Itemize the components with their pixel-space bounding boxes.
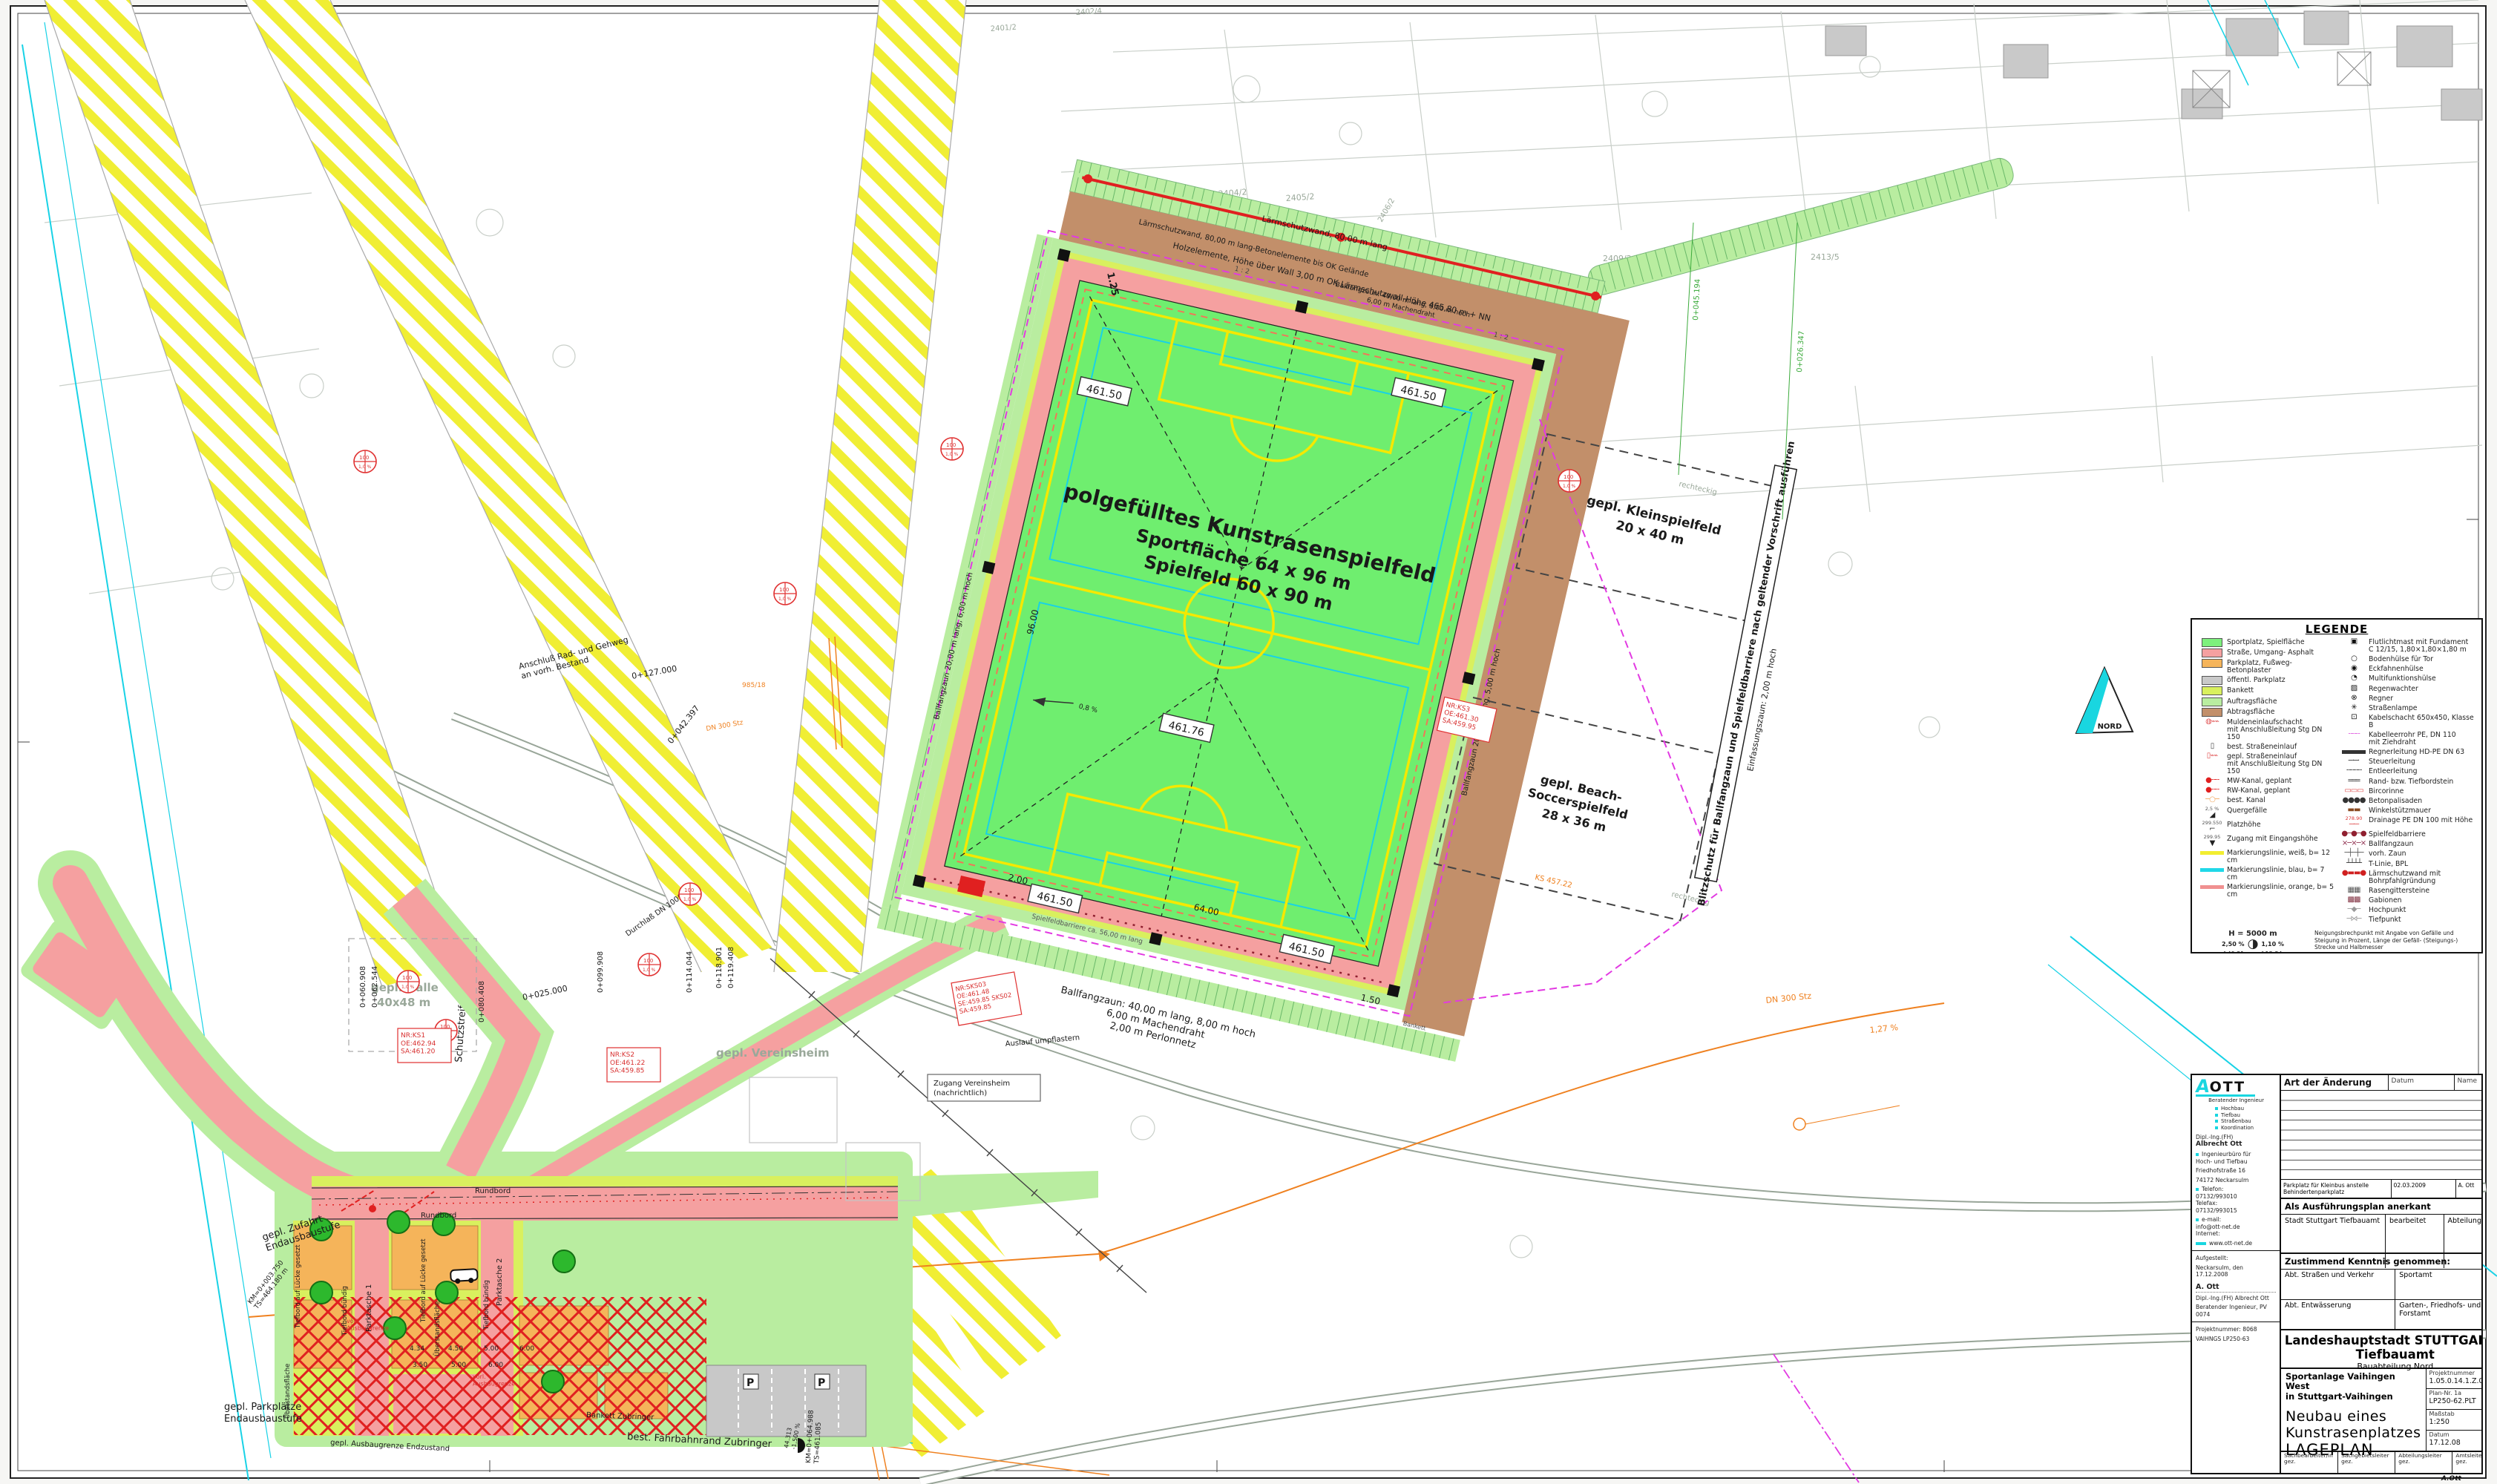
legend-symbol-icon [2197,686,2227,695]
legend-title: LEGENDE [2197,623,2476,636]
legend-item-label: RW-Kanal, geplant [2227,787,2290,795]
legend-item: ▨Regenwachter [2339,685,2476,693]
stamp-value: 100 [643,958,653,964]
approval-title: Als Ausführungsplan anerkant [2281,1199,2483,1215]
legend-right-column: ▣Flutlichtmast mit Fundament C 12/15, 1,… [2339,638,2476,925]
station: 0+060.908 [359,966,367,1008]
signature-row: Sachbearbeiter/in gez. Sachgebietsleiter… [2281,1452,2483,1473]
legend-symbol-icon: ▭▭▭ [2339,787,2369,795]
revision-date: 02.03.2009 [2391,1180,2455,1198]
legend-symbol-icon: ✳ [2339,704,2369,712]
parktasche-1: Parktasche 1 [365,1284,373,1332]
legend-item-label: Platzhöhe [2227,821,2261,829]
firm-project-code: VAIHNGS LP250-63 [2196,1336,2276,1342]
legend-item-label: MW-Kanal, geplant [2227,777,2291,785]
stamp-value: 1,0 % [1563,484,1575,489]
legend-symbol-icon [2197,638,2227,647]
revision-name: A. Ott [2455,1180,2483,1198]
revisions-date-col: Datum [2388,1075,2454,1090]
legend-item-label: Muldeneinlaufschacht mit Anschlußleitung… [2227,718,2334,741]
drawing-sheet: 2401/2 2402/4 2404/2 2405/2 2406/2 2409/… [0,0,2497,1484]
authority-section: Landeshauptstadt STUTTGART – Tiefbauamt … [2281,1330,2483,1369]
plannr-label: Plan-Nr. 1a [2429,1390,2483,1396]
titleblock-main: Art der Änderung Datum Name Parkplatz fü… [2281,1075,2483,1473]
legend-item: ─┼─┼─vorh. Zaun [2339,850,2476,858]
park-dim: 4.34 [410,1345,424,1353]
legend-item-label: Straße, Umgang- Asphalt [2227,649,2314,657]
stamp-value: 1,0 % [358,464,371,470]
stamp-value: 100 [359,455,369,461]
legend-item: Parkplatz, Fußweg- Betonplaster [2197,659,2334,674]
projnum-value: 1.05.0.14.1.Z.001.0 [2429,1377,2483,1385]
legend-item: ●╌╌MW-Kanal, geplant [2197,777,2334,785]
legend-symbol-icon [2197,849,2227,855]
firm-signature-name: Dipl.-Ing.(FH) Albrecht Ott [2196,1295,2276,1301]
tiefbord-label: Tiefbord auf Lücke gesetzt [420,1238,427,1323]
legend-item: ▭▭▭Bircorinne [2339,787,2476,795]
legend-symbol-icon [2197,659,2227,668]
firm-created-value: Neckarsulm, den 17.12.2008 [2196,1264,2276,1278]
legend-item-label: Spielfeldbarriere [2369,830,2426,838]
park-dim: 6.00 [488,1362,503,1369]
legend-item-label: Regner [2369,695,2393,703]
legend-symbol-icon: ▯ [2197,743,2227,750]
consent-dept: Abt. Entwässerung [2281,1300,2395,1329]
firm-project-number: Projektnummer: 8068 [2196,1326,2276,1333]
gradient-break-icon: ◑ [2248,938,2259,951]
scale-right-len: auf 12,34 m [2254,951,2290,953]
consent-dept: Abt. Straßen und Verkehr [2281,1270,2395,1298]
legend-symbol-icon: ⨯─⨯─⨯ [2339,840,2369,847]
plot-stamp: A.Ott [2441,1475,2461,1483]
legend-item-label: Abtragsfläche [2227,708,2274,716]
legend-item-label: best. Kanal [2227,796,2265,804]
legend-symbol-icon: ╌╌╌╌ [2339,767,2369,775]
rundbord-label: Rundbord [475,1187,511,1195]
legend-item: ▬▬Winkelstützmauer [2339,807,2476,815]
rundbord-label: Rundbord [421,1212,456,1220]
stamp-value: 100 [684,887,694,893]
park-dim: 5.00 [451,1362,466,1369]
station: 0+114.044 [686,951,694,993]
legend-item: ─◆─Hochpunkt [2339,906,2476,914]
sig-cell: Sachgebietsleiter gez. [2337,1452,2395,1473]
parking-p-sign: P [747,1377,754,1389]
stamp-value: 100 [402,975,412,981]
park-dim: 6.00 [519,1345,534,1353]
approval-section: Als Ausführungsplan anerkant Stadt Stutt… [2281,1199,2483,1255]
legend-item-label: Kabelschacht 650x450, Klasse B [2369,714,2476,729]
legend-item-label: Ballfangzaun [2369,840,2413,848]
firm-signature: A. Ott [2196,1283,2276,1293]
legend-item-label: Rand- bzw. Tiefbordstein [2369,778,2453,786]
legend-item: Markierungslinie, orange, b= 5 cm [2197,883,2334,899]
parcel-label: 985/18 [742,682,766,689]
legend-item-label: Zugang mit Eingangshöhe [2227,835,2318,843]
legend-item-label: Eckfahnenhülse [2369,665,2424,673]
legend-item-label: vorh. Zaun [2369,850,2406,858]
legend-symbol-icon [2197,708,2227,717]
legend-scale-note: H = 5000 m 2,50 % ◑ 1,10 % auf 49,21 m a… [2197,930,2476,953]
consent-dept: Sportamt [2395,1270,2483,1298]
projnum-label: Projektnummer [2429,1370,2483,1376]
legend-item: ▯best. Straßeneinlauf [2197,743,2334,751]
legend-symbol-icon: 299.95▼ [2197,835,2227,847]
legend-symbol-icon: ▨ [2339,685,2369,692]
legend-symbol-icon: ○ [2339,655,2369,663]
legend-item-label: Regnerleitung HD-PE DN 63 [2369,748,2464,756]
stamp-value: 1,0 % [683,897,696,902]
legend-item: ●╌╌RW-Kanal, geplant [2197,787,2334,795]
scale-left-len: auf 49,21 m [2216,951,2252,953]
inlet-stamp: 1001,0 % [638,953,660,976]
sig-cell: Sachbearbeiter/in gez. [2281,1452,2337,1473]
legend-symbol-icon: ─◆─ [2339,906,2369,913]
inlet-stamp: 1001,0 % [774,582,796,605]
legend-item: öffentl. Parkplatz [2197,676,2334,685]
station: 0+099.908 [597,951,605,993]
project-section: Sportanlage Vaihingen West in Stuttgart-… [2281,1369,2483,1452]
firm-name: Albrecht Ott [2196,1140,2276,1149]
parktasche-2: Parktasche 2 [496,1258,504,1306]
legend-symbol-icon: ▣ [2339,638,2369,646]
north-label: NORD [2098,723,2122,731]
firm-service: Straßenbau [2196,1118,2276,1125]
legend-symbol-icon [2197,866,2227,872]
legend-symbol-icon: ◉ [2339,665,2369,672]
legend-item: ●▬▬●Lärmschutzwand mit Bohrpfahlgründung [2339,870,2476,885]
legend-item-label: Bodenhülse für Tor [2369,655,2433,663]
legend-item-label: Gabionen [2369,896,2402,904]
legend-item-label: Rasengittersteine [2369,887,2429,895]
zugang-vereinsheim: Zugang Vereinsheim [933,1080,1010,1088]
legend-item-label: gepl. Straßeneinlauf mit Anschlußleitung… [2227,752,2334,775]
legend-item: 299.550⌐Platzhöhe [2197,821,2334,833]
legend-item-label: Entleerleitung [2369,767,2417,775]
legend-symbol-icon: ⊡ [2339,714,2369,721]
firm-signature-title: Beratender Ingenieur, PV 0074 [2196,1304,2276,1318]
site-plan-drawing: 2401/2 2402/4 2404/2 2405/2 2406/2 2409/… [0,0,2497,1484]
legend-item-label: Multifunktionshülse [2369,674,2436,683]
legend-item: Regnerleitung HD-PE DN 63 [2339,748,2476,756]
plannr-value: LP250-62.PLT [2429,1397,2483,1405]
revisions-empty-rows [2281,1091,2483,1179]
date-label: Datum [2429,1431,2483,1438]
legend-symbol-icon [2197,676,2227,685]
legend-symbol-icon [2197,697,2227,706]
legend-symbol-icon: ●╌╌ [2197,787,2227,794]
legend-symbol-icon [2197,883,2227,889]
firm-panel: A OTT Beratender Ingenieur HochbauTiefba… [2192,1075,2281,1473]
legend-item: 2,5 %◢Quergefälle [2197,807,2334,819]
firm-created-label: Aufgestellt: [2196,1255,2276,1261]
legend-item: ─·─·Steuerleitung [2339,758,2476,766]
firm-office: Ingenieurbüro für Hoch- und Tiefbau [2196,1151,2276,1165]
legend-item-label: Tiefpunkt [2369,916,2401,924]
legend-symbol-icon: 299.550⌐ [2197,821,2227,833]
legend-item: 299.95▼Zugang mit Eingangshöhe [2197,835,2334,847]
park-dim: 3.50 [413,1362,427,1369]
firm-tagline: Beratender Ingenieur [2196,1097,2264,1104]
legend-item: Markierungslinie, weiß, b= 12 cm [2197,849,2334,864]
legend-symbol-icon: ▯⌁⌁ [2197,752,2227,760]
stamp-value: 100 [1564,474,1573,480]
scale-left-pct: 2,50 % [2222,941,2245,948]
legend-symbol-icon: ─·─· [2339,758,2369,765]
firm-website: www.ott-net.de [2196,1240,2276,1247]
inlet-stamp: 1001,0 % [679,883,701,905]
legend-item: ╌╌╌╌Entleerleitung [2339,767,2476,775]
legend-symbol-icon: ─○─ [2197,796,2227,804]
firm-grad: Dipl.-Ing.(FH) [2196,1134,2276,1140]
legend-item-label: Auftragsfläche [2227,697,2277,706]
legend-symbol-icon: ─┼─┼─ [2339,850,2369,857]
legend-item: ◔Multifunktionshülse [2339,674,2476,683]
tiefbord-buendig: Tiefbord bündig [483,1280,490,1330]
firm-city: 74172 Neckarsulm [2196,1177,2276,1183]
scale-label: Maßstab [2429,1411,2483,1417]
legend-symbol-icon [2197,649,2227,657]
vereinsheim-label: gepl. Vereinsheim [716,1046,830,1060]
legend-item: Bankett [2197,686,2334,695]
legend-symbol-icon: ▦▦ [2339,887,2369,894]
legend-item: ╌╌╌Kabelleerrohr PE, DN 110 mit Ziehdrah… [2339,731,2476,746]
legend-symbol-icon: 278.90─·─ [2339,816,2369,829]
legend-item: Markierungslinie, blau, b= 7 cm [2197,866,2334,881]
legend-item: Abtragsfläche [2197,708,2334,717]
park-dim: 4.50 [448,1345,463,1353]
legend-item: ●●●●Betonpalisaden [2339,797,2476,805]
legend-item-label: Parkplatz, Fußweg- Betonplaster [2227,659,2334,674]
legend-symbol-icon: ●─●─● [2339,830,2369,838]
legend-left-column: Sportplatz, SpielflächeStraße, Umgang- A… [2197,638,2334,925]
revisions-table: Art der Änderung Datum Name Parkplatz fü… [2281,1075,2483,1199]
sig-cell: Abteilungsleiter gez. [2395,1452,2452,1473]
firm-logo: A OTT [2196,1079,2255,1097]
firm-logo-ott: OTT [2210,1081,2246,1094]
project-title: Neubau eines Kunstrasenplatzes [2286,1408,2421,1441]
sig-cell: Amtsleiter gez. [2452,1452,2483,1473]
legend-symbol-icon: ●╌╌ [2197,777,2227,784]
legend-symbol-icon [2339,748,2369,754]
legend-item-label: öffentl. Parkplatz [2227,676,2286,684]
parking-p-sign: P [818,1377,825,1389]
legend-symbol-icon: ▬▬ [2339,807,2369,814]
legend-symbol-icon: ─⋈─ [2339,916,2369,923]
park-dim: 5.00 [484,1345,499,1353]
legend-item-label: Quergefälle [2227,807,2267,815]
legend-symbol-icon: 2,5 %◢ [2197,807,2227,819]
parcel-label: 2413/5 [1811,252,1840,262]
legend-item: ═══Rand- bzw. Tiefbordstein [2339,778,2476,786]
inlet-stamp: 1001,0 % [354,450,376,473]
consent-dept: Garten-, Friedhofs- und Forstamt [2395,1300,2483,1329]
legend-symbol-icon: ╌╌╌ [2339,731,2369,738]
legend-item-label: Markierungslinie, orange, b= 5 cm [2227,883,2334,899]
legend-item: ─○─best. Kanal [2197,796,2334,804]
station: 0+118.901 [715,947,723,988]
stamp-value: 1,0 % [643,968,655,973]
stamp-value: 1,0 % [778,597,791,602]
inlet-stamp: 1001,0 % [397,971,419,993]
legend-item: ─⋈─Tiefpunkt [2339,916,2476,924]
legend-item-label: Hochpunkt [2369,906,2406,914]
station: 0+062.544 [371,966,379,1008]
consent-section: Zustimmend Kenntnis genommen: Abt. Straß… [2281,1254,2483,1330]
legend-item-label: Bankett [2227,686,2254,695]
tiefbord-label: Tiefbord auf Lücke gesetzt [295,1244,302,1329]
revision-text: Parkplatz für Kleinbus anstelle Behinder… [2281,1180,2391,1198]
legend-symbol-icon: ▩▩ [2339,896,2369,904]
legend-item-label: T-Linie, BPL [2369,860,2408,868]
legend-item: ┴┴┴┴T-Linie, BPL [2339,860,2476,868]
scale-description: Neigungsbrechpunkt mit Angabe von Gefäll… [2314,930,2476,951]
legend-item: ✳Straßenlampe [2339,704,2476,712]
legend-item: ○Bodenhülse für Tor [2339,655,2476,663]
date-value: 17.12.08 [2429,1439,2483,1447]
station: 0+119.408 [727,947,735,988]
legend-symbol-icon: ●▬▬● [2339,870,2369,877]
parcel-label: 2405/2 [1285,191,1315,203]
tiefbord-buendig: Tiefbord bündig [341,1286,349,1336]
legend-item-label: Kabelleerrohr PE, DN 110 mit Ziehdraht [2369,731,2456,746]
scale-value: 1:250 [2429,1418,2483,1426]
legend-item: Straße, Umgang- Asphalt [2197,649,2334,657]
scale-diagram: H = 5000 m 2,50 % ◑ 1,10 % auf 49,21 m a… [2197,930,2309,953]
stamp-value: 1,0 % [945,452,958,457]
legend-item-label: Bircorinne [2369,787,2404,795]
revisions-name-col: Name [2454,1075,2483,1090]
halle-size: 40x48 m [377,996,430,1009]
legend-item-label: Regenwachter [2369,685,2418,693]
revision-row: Parkplatz für Kleinbus anstelle Behinder… [2281,1179,2483,1198]
legend-symbol-icon: ⊗ [2339,695,2369,702]
legend-symbol-icon: ●●●● [2339,797,2369,804]
legend-panel: LEGENDE Sportplatz, SpielflächeStraße, U… [2191,618,2483,953]
firm-email: e-mail: info@ott-net.de Internet: [2196,1216,2276,1237]
firm-service: Tiefbau [2196,1112,2276,1119]
legend-item-label: Flutlichtmast mit Fundament C 12/15, 1,8… [2369,638,2468,654]
legend-item: ⊡Kabelschacht 650x450, Klasse B [2339,714,2476,729]
legend-item-label: Markierungslinie, blau, b= 7 cm [2227,866,2334,881]
ueberstand-label: Überstandsfläche [283,1364,292,1419]
legend-item: ▣Flutlichtmast mit Fundament C 12/15, 1,… [2339,638,2476,654]
firm-logo-a: A [2195,1079,2211,1094]
legend-symbol-icon: ◍⌁⌁ [2197,718,2227,726]
firm-street: Friedhofstraße 16 [2196,1167,2276,1174]
legend-item: ⨯─⨯─⨯Ballfangzaun [2339,840,2476,848]
firm-service: Koordination [2196,1125,2276,1132]
titleblock-panel: A OTT Beratender Ingenieur HochbauTiefba… [2191,1074,2483,1474]
legend-item-label: Sportplatz, Spielfläche [2227,638,2305,646]
inlet-stamp: 1001,0 % [1558,470,1581,492]
stamp-value: 100 [779,587,789,593]
legend-item-label: Winkelstützmauer [2369,807,2431,815]
stamp-value: 100 [946,442,956,448]
legend-item-label: Straßenlampe [2369,704,2418,712]
legend-item-label: Betonpalisaden [2369,797,2422,805]
project-name: Sportanlage Vaihingen West in Stuttgart-… [2286,1372,2421,1402]
legend-item-label: Drainage PE DN 100 mit Höhe [2369,816,2473,824]
legend-symbol-icon: ┴┴┴┴ [2339,860,2369,867]
legend-item: ⊗Regner [2339,695,2476,703]
legend-item-label: Steuerleitung [2369,758,2415,766]
legend-item: ◍⌁⌁Muldeneinlaufschacht mit Anschlußleit… [2197,718,2334,741]
legend-item: ▩▩Gabionen [2339,896,2476,904]
ueberstand-label: Überstandsfläche [433,1301,442,1356]
station: 0+080.408 [478,981,486,1022]
inlet-stamp: 1001,0 % [941,438,963,460]
scale-right-pct: 1,10 % [2261,941,2284,948]
legend-item: ▦▦Rasengittersteine [2339,887,2476,895]
stamp-value: 1,0 % [401,985,414,990]
legend-item: Auftragsfläche [2197,697,2334,706]
authority-name: Landeshauptstadt STUTTGART – Tiefbauamt [2281,1333,2483,1362]
legend-item-label: Lärmschutzwand mit Bohrpfahlgründung [2369,870,2476,885]
revisions-header: Art der Änderung [2281,1075,2388,1090]
legend-item: 278.90─·─Drainage PE DN 100 mit Höhe [2339,816,2476,829]
firm-services: HochbauTiefbauStraßenbauKoordination [2196,1106,2276,1132]
zugang-vereinsheim2: (nachrichtlich) [933,1089,987,1097]
consent-title: Zustimmend Kenntnis genommen: [2281,1254,2483,1269]
firm-service: Hochbau [2196,1106,2276,1112]
legend-symbol-icon: ◔ [2339,674,2369,682]
firm-phone: Telefon: 07132/993010 Telefax: 07132/993… [2196,1186,2276,1214]
legend-item: ▯⌁⌁gepl. Straßeneinlauf mit Anschlußleit… [2197,752,2334,775]
legend-item: ●─●─●Spielfeldbarriere [2339,830,2476,838]
legend-item: Sportplatz, Spielfläche [2197,638,2334,647]
legend-symbol-icon: ═══ [2339,778,2369,785]
legend-item: ◉Eckfahnenhülse [2339,665,2476,673]
legend-item-label: best. Straßeneinlauf [2227,743,2297,751]
legend-item-label: Markierungslinie, weiß, b= 12 cm [2227,849,2334,864]
